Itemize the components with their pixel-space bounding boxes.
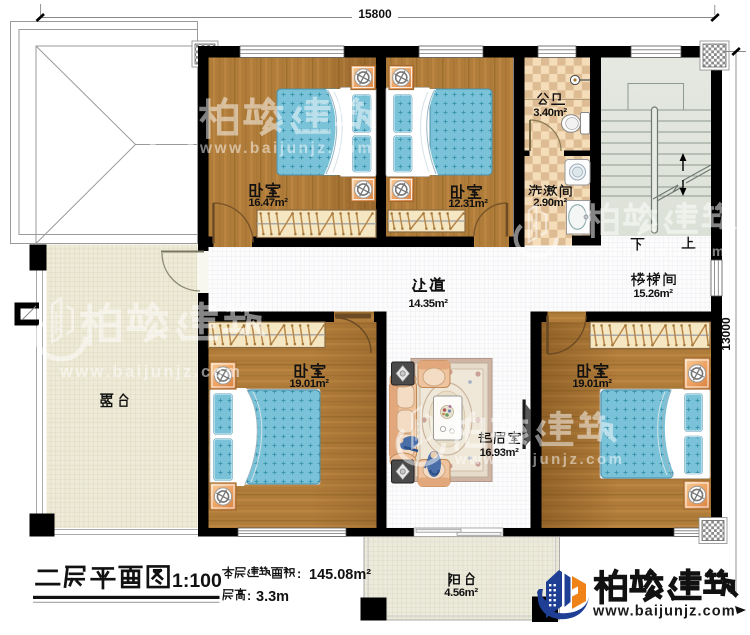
svg-text:3.3m: 3.3m xyxy=(256,589,289,605)
svg-text:www.baijunjz.com: www.baijunjz.com xyxy=(592,604,736,620)
svg-text::: : xyxy=(297,567,301,581)
svg-text:15800: 15800 xyxy=(358,7,392,21)
svg-text:15.26m²: 15.26m² xyxy=(633,288,673,300)
svg-text:145.08m²: 145.08m² xyxy=(309,567,371,583)
svg-text:19.01m²: 19.01m² xyxy=(572,378,612,390)
svg-text:4.56m²: 4.56m² xyxy=(444,587,478,599)
svg-text:13000: 13000 xyxy=(719,317,733,351)
svg-text::: : xyxy=(247,589,251,603)
svg-text:12.31m²: 12.31m² xyxy=(448,198,488,210)
svg-text:14.35m²: 14.35m² xyxy=(408,298,448,310)
svg-text:2.90m²: 2.90m² xyxy=(533,197,567,209)
svg-text:www.baijunjz.com: www.baijunjz.com xyxy=(454,451,624,468)
svg-text:1:100: 1:100 xyxy=(172,570,222,592)
svg-text:www.baijunjz.com: www.baijunjz.com xyxy=(59,363,242,381)
svg-text:3.40m²: 3.40m² xyxy=(533,107,567,119)
svg-text:16.47m²: 16.47m² xyxy=(248,197,288,209)
svg-text:www.baijunjz.com: www.baijunjz.com xyxy=(199,140,374,157)
svg-text:www.baijunjz.com: www.baijunjz.com xyxy=(565,243,727,259)
svg-text:19.01m²: 19.01m² xyxy=(289,378,329,390)
